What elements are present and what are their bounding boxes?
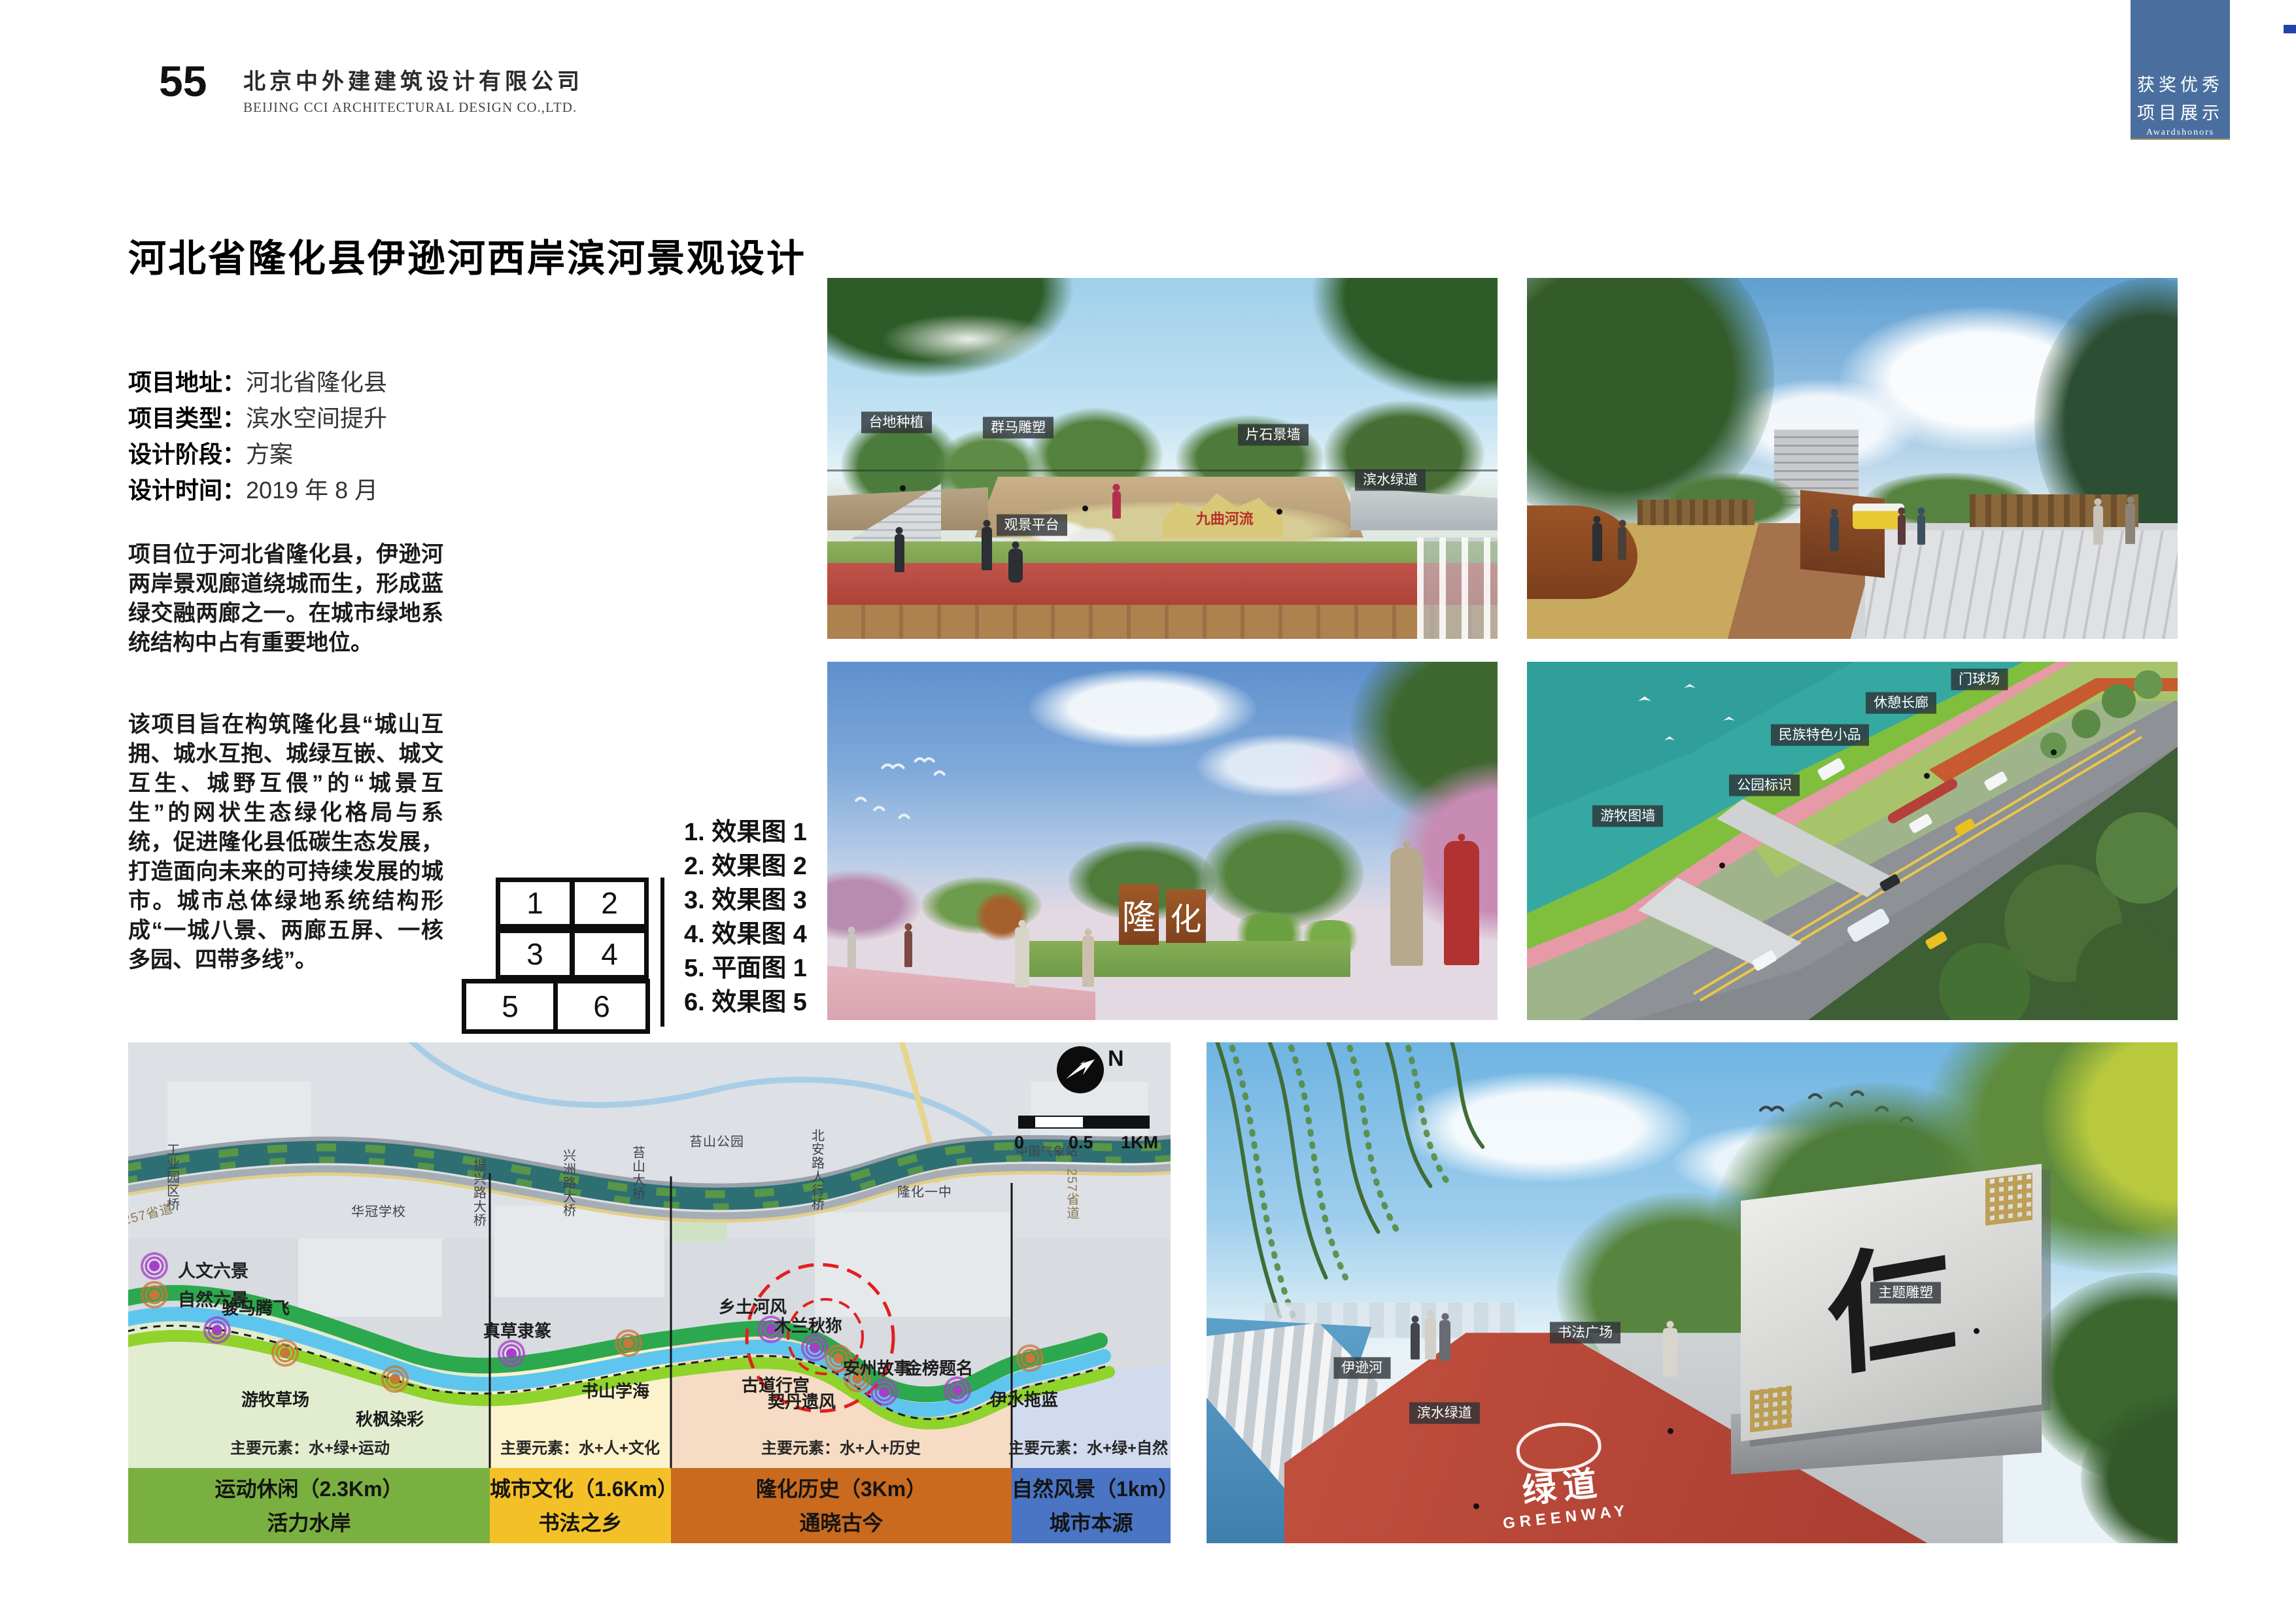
band-line2: 书法之乡 [490,1510,671,1536]
poi-mulan: 木兰秋狝 [774,1313,842,1337]
section-elements-4: 主要元素：水+绿+自然 [1008,1435,1168,1458]
section-elements-2: 主要元素：水+人+文化 [500,1435,660,1458]
info-label: 项目地址： [128,369,246,396]
birds [841,755,1042,834]
place-longhua-yizhong: 隆化一中 [897,1182,952,1201]
info-value: 2019 年 8 月 [246,477,378,504]
portfolio-page: { "page_number": "55", "header": { "comp… [0,0,2296,1623]
info-row-stage: 设计阶段：方案 [128,436,293,470]
figure-list-item: 6. 效果图 5 [684,985,807,1019]
poi-anzhou: 安州故事 [843,1356,911,1380]
section-band-3: 隆化历史（3Km） 通晓古今 [671,1468,1012,1543]
figure-box-num: 5 [502,989,519,1024]
band-line1: 自然风景（1km） [1012,1476,1171,1502]
band-line1: 城市文化（1.6Km） [490,1476,671,1502]
figure-box-2: 2 [570,878,649,929]
aerial-scene [1527,662,2178,1020]
paragraph-1: 项目位于河北省隆化县，伊逊河两岸景观廊道绕城而生，形成蓝绿交融两廊之一。在城市绿… [128,540,443,658]
greenway-ground-logo: 绿道 GREENWAY [1493,1416,1630,1533]
info-value: 河北省隆化县 [246,369,387,396]
poi-jinbang: 金榜题名 [905,1356,973,1380]
figure-index-divider [660,878,664,1027]
poi-marker [870,1378,899,1407]
scale-tick-0: 0 [1014,1133,1024,1153]
willow-branches [1207,1042,1537,1343]
info-row-date: 设计时间：2019 年 8 月 [128,471,378,505]
poi-marker [271,1339,300,1367]
figure-box-4: 4 [570,929,649,980]
company-block: 北京中外建建筑设计有限公司 BEIJING CCI ARCHITECTURAL … [243,63,583,116]
figure-box-num: 3 [526,936,543,972]
figure-index-list: 1. 效果图 1 2. 效果图 2 3. 效果图 3 4. 效果图 4 5. 平… [684,815,807,1019]
place-257-east: 257省道 [1063,1169,1082,1220]
page-edge-mark [2284,25,2296,33]
info-row-type: 项目类型：滨水空间提升 [128,400,387,434]
band-line1: 隆化历史（3Km） [671,1476,1012,1502]
award-corner-tab: 获奖优秀 项目展示 Awardshonors [2131,0,2230,140]
section-elements-1: 主要元素：水+绿+运动 [230,1435,390,1458]
annotation-yixunhe: 伊逊河 [1333,1357,1390,1378]
rendering-effect-5: 绿道 GREENWAY 仁 主题雕塑 书法广场 伊逊河 滨水绿道 [1207,1042,2178,1543]
rendering-effect-4: 门球场 休憩长廊 民族特色小品 公园标识 游牧图墙 [1527,662,2178,1020]
annotation-taidi: 台地种植 [861,411,932,433]
annotation-xiuqi: 休憩长廊 [1866,692,1936,714]
info-label: 设计时间： [128,477,246,504]
paragraph-2: 该项目旨在构筑隆化县“城山互拥、城水互抱、城绿互嵌、城文互生、城野互偎”的“城景… [128,710,443,975]
scale-bar [1018,1116,1150,1129]
section-band-1: 运动休闲（2.3Km） 活力水岸 [128,1468,490,1543]
place-xingzhou: 兴洲路大桥 [559,1149,578,1218]
place-taishan-bridge: 苔山大桥 [628,1146,647,1201]
north-arrow [1057,1046,1104,1093]
corten-sign-hua: 化 [1166,889,1207,943]
sign-char: 隆 [1122,890,1156,939]
annotation-menqiu: 门球场 [1951,669,2008,691]
poi-qiufeng: 秋枫染彩 [356,1407,424,1431]
band-line2: 活力水岸 [128,1510,490,1536]
poi-zhencao: 真草隶篆 [483,1318,551,1342]
award-tab-line3: Awardshonors [2131,128,2230,138]
figure-list-item: 1. 效果图 1 [684,815,807,849]
award-tab-line1: 获奖优秀 [2131,71,2230,96]
poi-qidan: 契丹遗风 [768,1389,836,1413]
section-band-2: 城市文化（1.6Km） 书法之乡 [490,1468,671,1543]
figure-box-num: 2 [601,885,618,921]
info-value: 方案 [246,441,293,468]
rendering-effect-1: 九曲河流 台地种植 群马雕塑 片石景墙 观景平台 滨水绿道 [827,278,1498,639]
info-value: 滨水空间提升 [246,405,387,432]
corten-sign-long: 隆 [1119,884,1159,945]
section-band-4: 自然风景（1km） 城市本源 [1012,1468,1171,1543]
annotation-gongyuan: 公园标识 [1729,775,1800,796]
red-running-track [827,563,1498,606]
poi-shushan: 书山学海 [581,1378,649,1403]
figure-box-1: 1 [496,878,574,929]
poi-junma: 骏马腾飞 [222,1295,290,1320]
award-tab-line2: 项目展示 [2131,99,2230,124]
poi-marker [1016,1344,1044,1373]
place-beian: 北安路人行桥 [808,1129,827,1211]
annotation-shufa: 书法广场 [1550,1322,1620,1344]
figure-box-num: 4 [601,936,618,972]
annotation-zhuti: 主题雕塑 [1870,1282,1941,1304]
sign-char: 化 [1170,893,1201,939]
poi-youmu: 游牧草场 [241,1387,309,1411]
figure-list-item: 3. 效果图 3 [684,883,807,917]
figure-list-item: 2. 效果图 2 [684,849,807,883]
stone-inscription: 九曲河流 [1196,507,1254,528]
wood-deck [827,605,1498,639]
figure-list-item: 5. 平面图 1 [684,951,807,985]
band-line2: 通晓古今 [671,1510,1012,1536]
north-label: N [1108,1046,1124,1072]
page-number: 55 [159,56,207,106]
band-line1: 运动休闲（2.3Km） [128,1476,490,1502]
legend-label-culture: 人文六景 [178,1257,248,1282]
figure-box-3: 3 [496,929,574,980]
info-row-address: 项目地址：河北省隆化县 [128,364,387,398]
section-elements-3: 主要元素：水+人+历史 [761,1435,921,1458]
place-huaguan: 华冠学校 [351,1201,406,1220]
place-taishan-park: 苔山公园 [689,1131,744,1150]
annotation-pianshi: 片石景墙 [1238,424,1309,446]
company-name-cn: 北京中外建建筑设计有限公司 [243,63,583,95]
annotation-guanjing: 观景平台 [997,515,1067,536]
annotation-qunma: 群马雕塑 [983,417,1054,439]
info-label: 设计阶段： [128,441,246,468]
scale-tick-1km: 1KM [1121,1133,1158,1153]
legend-marker-culture [140,1252,169,1280]
band-line2: 城市本源 [1012,1510,1171,1536]
annotation-binshui: 滨水绿道 [1355,470,1426,491]
figure-box-5: 5 [462,979,558,1034]
figure-box-num: 1 [526,885,543,921]
scale-tick-05: 0.5 [1069,1133,1093,1153]
pergola [1637,500,1755,525]
gold-corner-ornament [1750,1386,1792,1433]
rendering-effect-2 [1527,278,2178,639]
place-zhenxing: 振兴路大桥 [470,1159,488,1227]
figure-box-6: 6 [553,979,650,1034]
pergola [1970,494,2139,527]
poi-yishui: 伊水拖蓝 [990,1387,1058,1411]
rendering-effect-3: 隆 化 [827,662,1498,1020]
annotation-minzu: 民族特色小品 [1771,725,1869,746]
poi-marker [614,1329,643,1358]
gold-corner-ornament [1985,1173,2032,1226]
figure-list-item: 4. 效果图 4 [684,917,807,951]
yellow-bus [1853,504,1905,529]
figure-box-num: 6 [593,989,610,1024]
info-label: 项目类型： [128,405,246,432]
poi-marker [381,1365,409,1393]
annotation-binshui-6: 滨水绿道 [1409,1402,1480,1424]
master-plan-map: 运动休闲（2.3Km） 活力水岸 城市文化（1.6Km） 书法之乡 隆化历史（3… [128,1042,1171,1543]
poi-marker [943,1376,972,1405]
annotation-youmu: 游牧图墙 [1592,805,1663,827]
legend-marker-nature [140,1280,169,1309]
page-title: 河北省隆化县伊逊河西岸滨河景观设计 [128,228,806,282]
poi-marker [203,1316,231,1344]
company-name-en: BEIJING CCI ARCHITECTURAL DESIGN CO.,LTD… [243,99,583,116]
poi-marker [497,1339,526,1368]
